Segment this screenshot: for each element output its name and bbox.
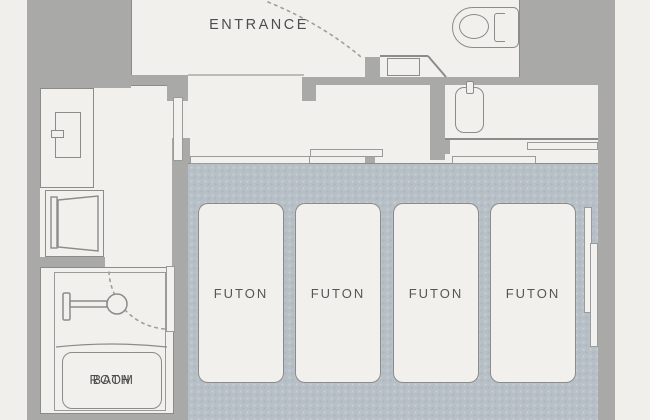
bathroom-label-line2: ROOM [90,373,135,388]
floor-plan: BATH ROOM FUTON FUTON FUTON FUTON ENT [0,0,650,420]
fusuma-handle [442,140,450,154]
fusuma-panel-icon [527,142,598,150]
futon-3: FUTON [393,203,479,383]
wall-top-left [27,0,131,88]
wall-laundry-bottom [40,257,105,267]
fusuma-panel-icon [310,149,383,157]
futon-2: FUTON [295,203,381,383]
futon-label: FUTON [506,286,561,301]
wall-top-right [520,0,615,85]
futon-label: FUTON [311,286,366,301]
wall-shoe-block [365,57,380,78]
fusuma-panel-icon [190,156,310,164]
counter-line [445,138,598,140]
toilet-bowl-icon [459,14,489,39]
fusuma-panel-icon [452,156,536,164]
faucet-icon [466,81,474,94]
futon-4: FUTON [490,203,576,383]
sliding-window-icon [590,243,598,347]
futon-1: FUTON [198,203,284,383]
hallway [94,85,174,267]
futon-label: FUTON [214,286,269,301]
refrigerator-handle-icon [51,130,64,138]
sliding-door-icon [173,97,183,161]
toilet-tank-icon [494,13,505,42]
bathtub-icon: BATH ROOM [62,352,162,409]
bathroom-door-icon [166,266,175,332]
futon-label: FUTON [409,286,464,301]
shoe-cabinet-icon [387,58,420,76]
entrance-step-line [188,74,304,76]
wall-left [27,84,40,420]
niche-wall-line [380,55,428,57]
washing-machine-icon [45,190,104,257]
entrance-label: ENTRANCE [179,14,339,36]
wall-right [598,84,615,420]
